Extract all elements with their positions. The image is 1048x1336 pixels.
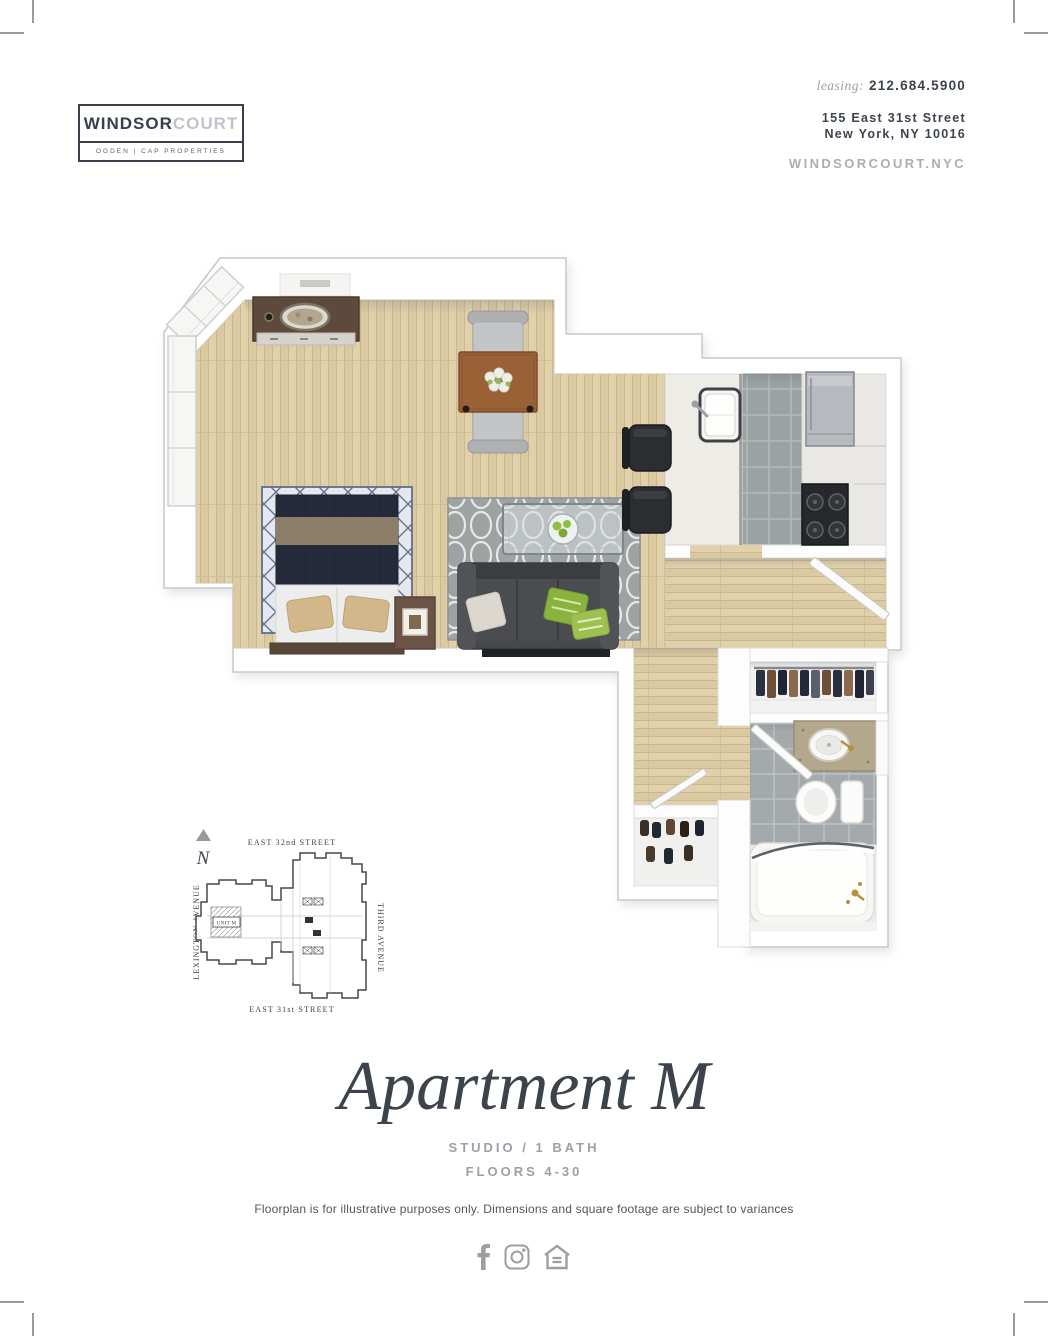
entry-floor: [665, 558, 886, 648]
street-bottom-label: EAST 31st STREET: [249, 1005, 335, 1014]
left-wall-window: [168, 336, 196, 506]
bed: [270, 495, 404, 654]
bathroom-vanity: [794, 721, 876, 771]
toilet: [796, 781, 863, 823]
dining-chair-top: [468, 311, 528, 354]
sofa-area: [448, 498, 640, 657]
equal-housing-icon: [543, 1244, 571, 1270]
floorplan-svg: N EAST 32nd STREET EAST 31st STREET LEXI…: [0, 0, 1048, 1336]
avenue-right-label: THIRD AVENUE: [376, 903, 385, 973]
coffee-table: [503, 504, 623, 554]
wall-tv: [482, 649, 610, 657]
refrigerator: [806, 372, 854, 446]
unit-m-highlight: UNIT M: [211, 907, 241, 937]
closet-clothes: [750, 668, 876, 713]
sofa-pillow-green-2: [570, 608, 610, 640]
dresser: [253, 297, 359, 345]
hallway-floor: [634, 648, 718, 805]
north-arrow-icon: [196, 829, 211, 841]
floorplan-page: WINDSORCOURT OGDEN | CAP PROPERTIES leas…: [0, 0, 1048, 1336]
street-top-label: EAST 32nd STREET: [248, 838, 336, 847]
facebook-icon: [477, 1244, 491, 1270]
bed-area: [262, 487, 435, 654]
bed-pillow-right: [342, 595, 390, 632]
social-icons-row: [0, 1244, 1048, 1270]
sofa-pillow-white: [465, 591, 506, 632]
bathroom-doorway-threshold: [718, 726, 750, 800]
sofa: [458, 563, 618, 649]
page-title: Apartment M: [0, 1052, 1048, 1122]
spec-line-1: STUDIO / 1 BATH: [0, 1140, 1048, 1155]
nightstand: [395, 597, 435, 649]
unit-m-label: UNIT M: [217, 922, 237, 927]
medicine-cabinet: [876, 721, 888, 775]
instagram-icon: [504, 1244, 530, 1270]
disclaimer-text: Floorplan is for illustrative purposes o…: [0, 1202, 1048, 1216]
bed-footboard: [270, 643, 404, 654]
kitchen-tile-floor: [742, 374, 802, 545]
dresser-lamp: [265, 313, 273, 321]
wall-vent: [280, 274, 350, 296]
site-map: N EAST 32nd STREET EAST 31st STREET LEXI…: [192, 829, 385, 1014]
north-label: N: [196, 848, 211, 869]
dining-chair-bottom: [468, 410, 528, 453]
kitchen-doorway-threshold: [690, 545, 762, 558]
kitchen-sink: [692, 389, 741, 441]
bed-pillow-left: [286, 595, 334, 633]
spec-line-2: FLOORS 4-30: [0, 1164, 1048, 1179]
stove: [802, 484, 848, 545]
